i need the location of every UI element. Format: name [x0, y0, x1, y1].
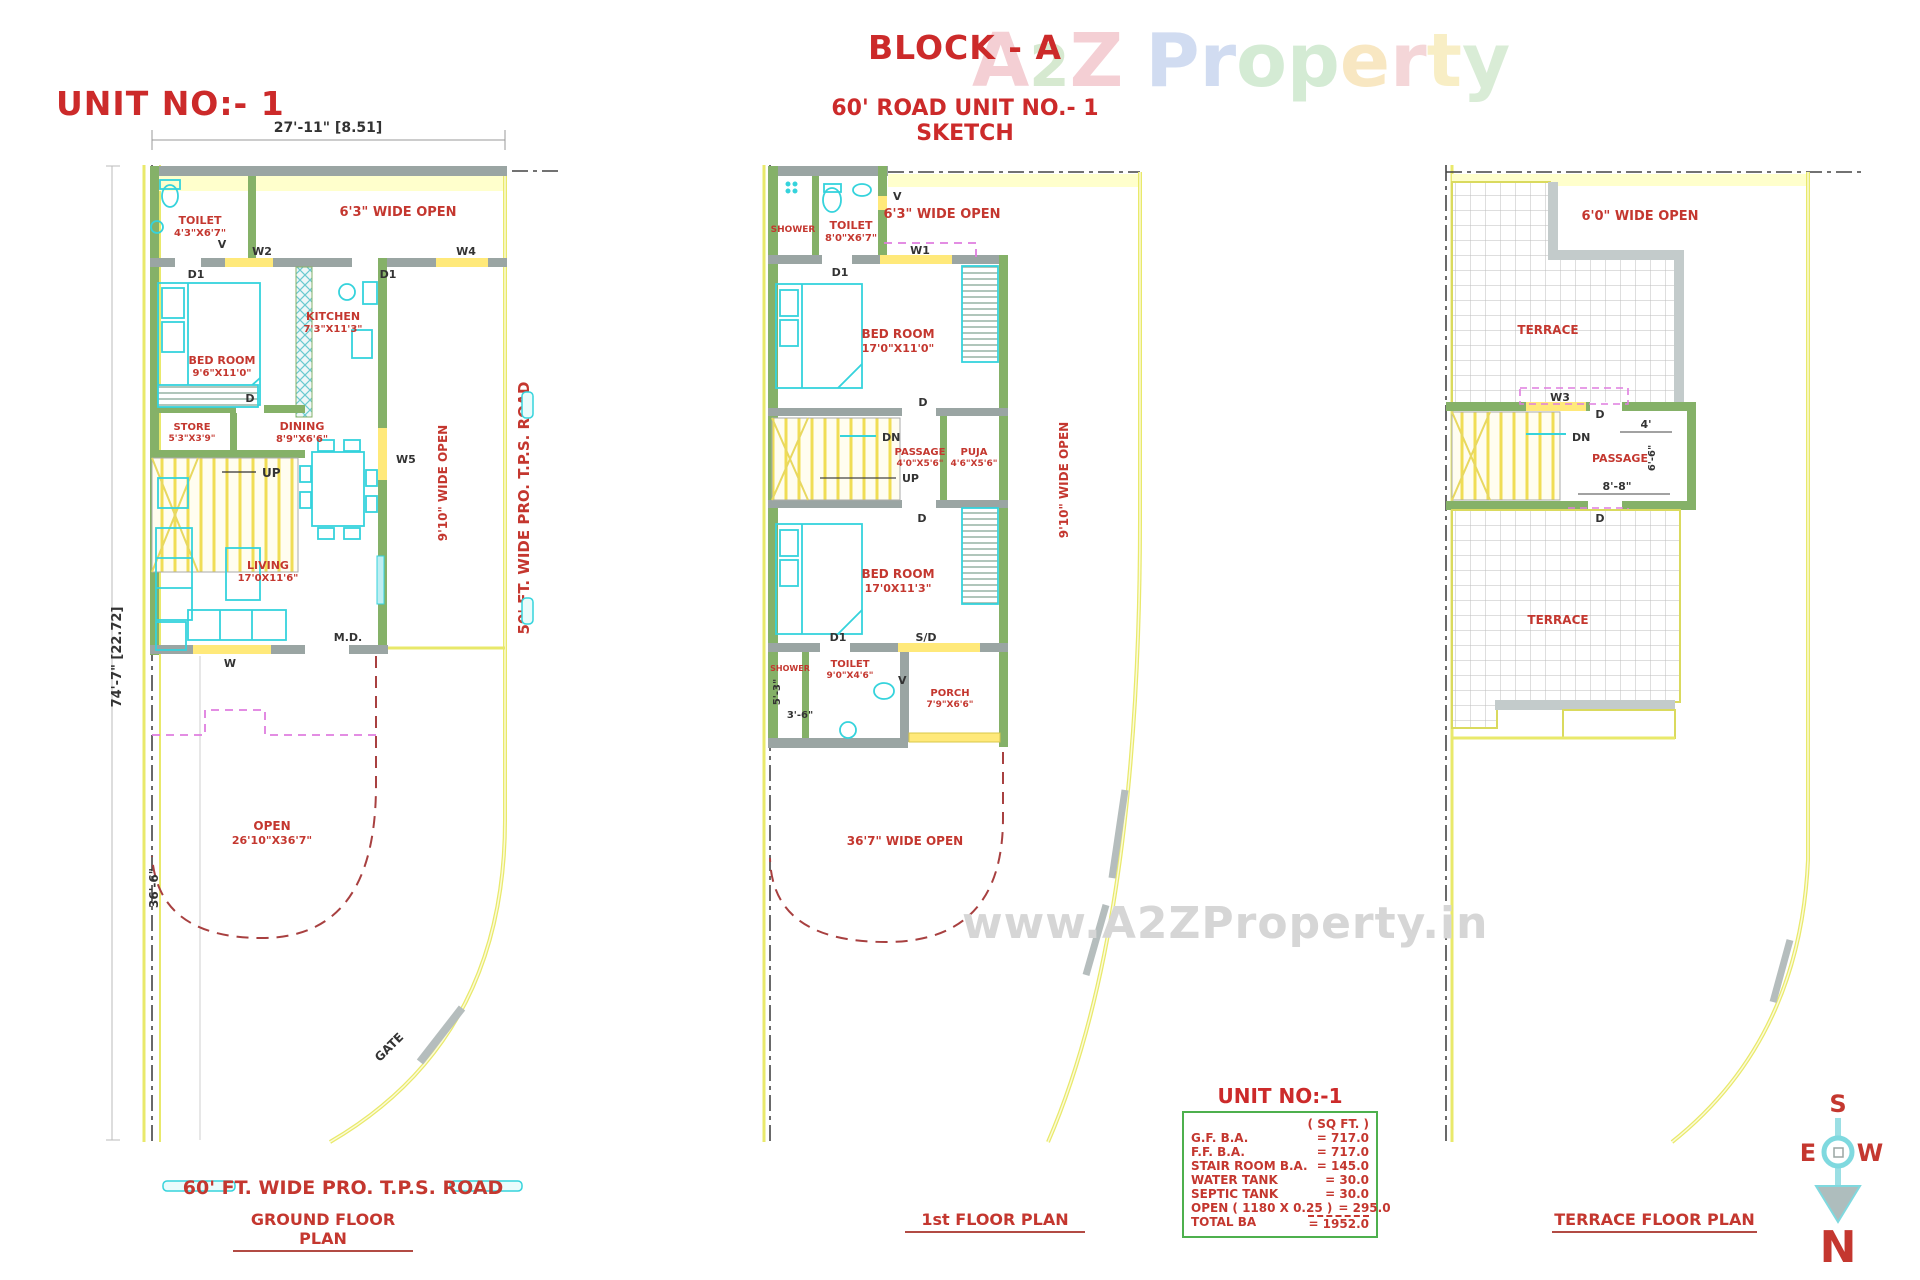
ground-tag-w5: W5: [396, 453, 416, 466]
first-room-puja-size: 4'6"X5'6": [951, 459, 998, 469]
table-row: STAIR ROOM B.A. = 145.0: [1191, 1159, 1369, 1173]
row-label: G.F. B.A.: [1191, 1131, 1248, 1145]
floor-plan-sheet: A2ZProperty UNIT NO:- 1 BLOCK - A 60' RO…: [0, 0, 1920, 1280]
terrace-stair-block: [1446, 388, 1696, 526]
first-room-bedroom-top: BED ROOM: [861, 327, 934, 341]
terrace-dim-c: 8'-8": [1603, 480, 1632, 493]
ground-tag-md: M.D.: [334, 631, 362, 644]
first-wide-open-bottom: 36'7" WIDE OPEN: [847, 834, 963, 848]
terrace-floor-plan-title: TERRACE FLOOR PLAN: [1552, 1210, 1757, 1233]
ground-site-lines: [152, 656, 376, 938]
ground-room-toilet: TOILET: [179, 214, 222, 227]
terrace-dim-b: 6'-6": [1647, 445, 1658, 471]
first-wide-open-top: 6'3" WIDE OPEN: [883, 207, 1000, 222]
ground-road-side: 50' FT. WIDE PRO. T.P.S. ROAD: [515, 381, 533, 634]
first-floor-plan: SHOWER TOILET 8'0"X6'7" V 6'3" WIDE OPEN…: [764, 165, 1140, 1142]
terrace-tag-d-bottom: D: [1595, 512, 1604, 525]
first-tag-sd: S/D: [915, 631, 936, 644]
ground-open-label: OPEN: [253, 819, 290, 833]
table-total-row: TOTAL BA = 1952.0: [1191, 1215, 1369, 1231]
first-room-passage-size: 4'0"X5'6": [897, 459, 944, 469]
first-tag-w1: W1: [910, 244, 930, 257]
row-value: = 717.0: [1317, 1131, 1369, 1145]
first-room-bedroom-top-size: 17'0"X11'0": [862, 342, 935, 355]
first-tag-v-bottom: V: [898, 674, 907, 687]
first-room-puja: PUJA: [961, 447, 988, 458]
first-plot-boundary: [764, 165, 1140, 1142]
terrace-upper-label: TERRACE: [1517, 323, 1578, 337]
first-room-bedroom-bottom: BED ROOM: [861, 567, 934, 581]
compass-north: N: [1820, 1222, 1857, 1273]
compass-rose: S E W N: [1800, 1090, 1883, 1273]
ground-dim-height: 74'-7" [22.72]: [110, 607, 125, 708]
ground-tag-w4: W4: [456, 245, 476, 258]
ground-room-bedroom: BED ROOM: [189, 354, 256, 367]
first-room-porch-size: 7'9"X6'6": [927, 700, 974, 710]
ground-tag-w2: W2: [252, 245, 272, 258]
first-room-porch: PORCH: [930, 688, 969, 699]
terrace-lower-label: TERRACE: [1527, 613, 1588, 627]
total-label: TOTAL BA: [1191, 1215, 1256, 1231]
ground-tag-up: UP: [262, 466, 281, 480]
ground-walls: [150, 166, 507, 655]
first-room-bedroom-bottom-size: 17'0X11'3": [865, 582, 932, 595]
ground-dim-width: 27'-11" [8.51]: [274, 120, 383, 136]
table-row: SEPTIC TANK = 30.0: [1191, 1187, 1369, 1201]
first-dim-a: 5'-3": [772, 679, 783, 705]
ground-road-legend: 60' FT. WIDE PRO. T.P.S. ROAD: [163, 1177, 522, 1199]
row-value: = 717.0: [1317, 1145, 1369, 1159]
compass-east: E: [1800, 1139, 1816, 1167]
table-row: WATER TANK = 30.0: [1191, 1173, 1369, 1187]
row-value: = 145.0: [1317, 1159, 1369, 1173]
terrace-tag-dn: DN: [1572, 431, 1590, 444]
ground-floor-plan: 27'-11" [8.51] 74'-7" [22.72] TOILET 4'3…: [106, 120, 560, 1199]
terrace-wide-open-top: 6'0" WIDE OPEN: [1581, 209, 1698, 224]
first-room-toilet-bottom: TOILET: [830, 659, 869, 670]
first-dim-b: 3'-6": [787, 710, 813, 721]
ground-room-kitchen-size: 7'3"X11'3": [303, 324, 362, 335]
first-room-toilet-bottom-size: 9'0"X4'6": [827, 671, 874, 681]
ground-room-living: LIVING: [247, 559, 289, 572]
table-row: OPEN ( 1180 X 0.25 ) = 295.0: [1191, 1201, 1369, 1215]
first-wide-open-side: 9'10" WIDE OPEN: [1057, 422, 1071, 538]
first-tag-v-top: V: [893, 190, 902, 203]
first-tag-dn: DN: [882, 431, 900, 444]
ground-dim-open: 36'-6": [147, 868, 161, 908]
ground-road-bottom: 60' FT. WIDE PRO. T.P.S. ROAD: [183, 1177, 504, 1199]
area-unit-header: ( SQ FT. ): [1191, 1117, 1369, 1131]
ground-tag-d1-toilet: D1: [188, 268, 205, 281]
ground-room-store-size: 5'3"X3'9": [169, 434, 216, 444]
first-tag-d1-bottom: D1: [830, 631, 847, 644]
ground-room-store: STORE: [173, 422, 210, 433]
ground-tag-d1-kitchen: D1: [380, 268, 397, 281]
terrace-dim-a: 4': [1640, 418, 1651, 431]
ground-room-living-size: 17'0X11'6": [238, 573, 299, 584]
first-room-toilet-top: TOILET: [830, 219, 873, 232]
ground-tag-d: D: [245, 392, 254, 405]
compass-west: W: [1857, 1139, 1883, 1167]
ground-floor-plan-title: GROUND FLOOR PLAN: [233, 1210, 413, 1252]
area-statement-title: UNIT NO:-1: [1182, 1084, 1378, 1108]
table-row: F.F. B.A. = 717.0: [1191, 1145, 1369, 1159]
ground-wide-open-side: 9'10" WIDE OPEN: [436, 425, 450, 541]
ground-tag-v: V: [218, 238, 227, 251]
row-value: = 295.0: [1338, 1201, 1390, 1215]
terrace-passage-label: PASSAGE: [1592, 452, 1648, 465]
terrace-tag-d-top: D: [1595, 408, 1604, 421]
terrace-tag-w3: W3: [1550, 391, 1570, 404]
ground-room-kitchen: KITCHEN: [306, 310, 360, 323]
first-room-toilet-top-size: 8'0"X6'7": [825, 233, 877, 244]
row-label: STAIR ROOM B.A.: [1191, 1159, 1308, 1173]
first-room-shower-bottom: SHOWER: [770, 664, 810, 673]
plan-drawing: 27'-11" [8.51] 74'-7" [22.72] TOILET 4'3…: [0, 0, 1920, 1280]
first-tag-d1-top: D1: [832, 266, 849, 279]
area-statement-box: ( SQ FT. ) G.F. B.A. = 717.0 F.F. B.A. =…: [1182, 1111, 1378, 1238]
total-value: = 1952.0: [1308, 1215, 1369, 1231]
ground-open-size: 26'10"X36'7": [232, 834, 312, 847]
terrace-floor-plan: 6'0" WIDE OPEN TERRACE W3 D DN 4' PASSAG…: [1446, 165, 1862, 1142]
row-value: = 30.0: [1325, 1173, 1369, 1187]
first-room-passage: PASSAGE: [895, 447, 946, 458]
ground-gate-label: GATE: [372, 1030, 406, 1064]
first-tag-up: UP: [902, 472, 919, 485]
row-label: F.F. B.A.: [1191, 1145, 1245, 1159]
row-label: WATER TANK: [1191, 1173, 1278, 1187]
first-tag-d-top: D: [918, 396, 927, 409]
first-tag-d-mid: D: [917, 512, 926, 525]
row-value: = 30.0: [1325, 1187, 1369, 1201]
compass-south: S: [1829, 1090, 1846, 1118]
first-floor-plan-title: 1st FLOOR PLAN: [905, 1210, 1085, 1233]
ground-tag-w: W: [224, 657, 236, 670]
ground-wide-open-top: 6'3" WIDE OPEN: [339, 205, 456, 220]
ground-room-dining: DINING: [280, 420, 325, 433]
watermark-url: www.A2ZProperty.in: [962, 898, 1488, 949]
row-label: OPEN ( 1180 X 0.25 ): [1191, 1201, 1332, 1215]
ground-room-bedroom-size: 9'6"X11'0": [192, 368, 251, 379]
area-statement: UNIT NO:-1 ( SQ FT. ) G.F. B.A. = 717.0 …: [1182, 1084, 1378, 1238]
table-row: G.F. B.A. = 717.0: [1191, 1131, 1369, 1145]
ground-room-dining-size: 8'9"X6'6": [276, 434, 328, 445]
first-room-shower-top: SHOWER: [771, 225, 816, 235]
first-stairs: [772, 418, 900, 500]
row-label: SEPTIC TANK: [1191, 1187, 1278, 1201]
